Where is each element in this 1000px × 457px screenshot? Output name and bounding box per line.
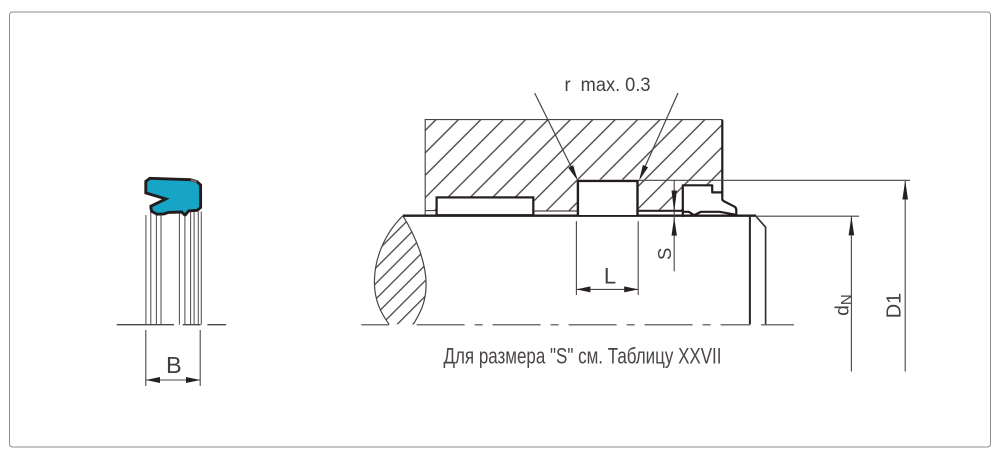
svg-text:Для размера "S" см. Таблицу XX: Для размера "S" см. Таблицу XXVII: [444, 344, 722, 369]
svg-text:L: L: [604, 264, 616, 289]
svg-text:S: S: [654, 248, 675, 260]
svg-text:B: B: [166, 352, 182, 378]
svg-text:dN: dN: [833, 294, 856, 315]
svg-text:D1: D1: [884, 293, 906, 319]
svg-text:r max. 0.3: r max. 0.3: [565, 74, 651, 96]
